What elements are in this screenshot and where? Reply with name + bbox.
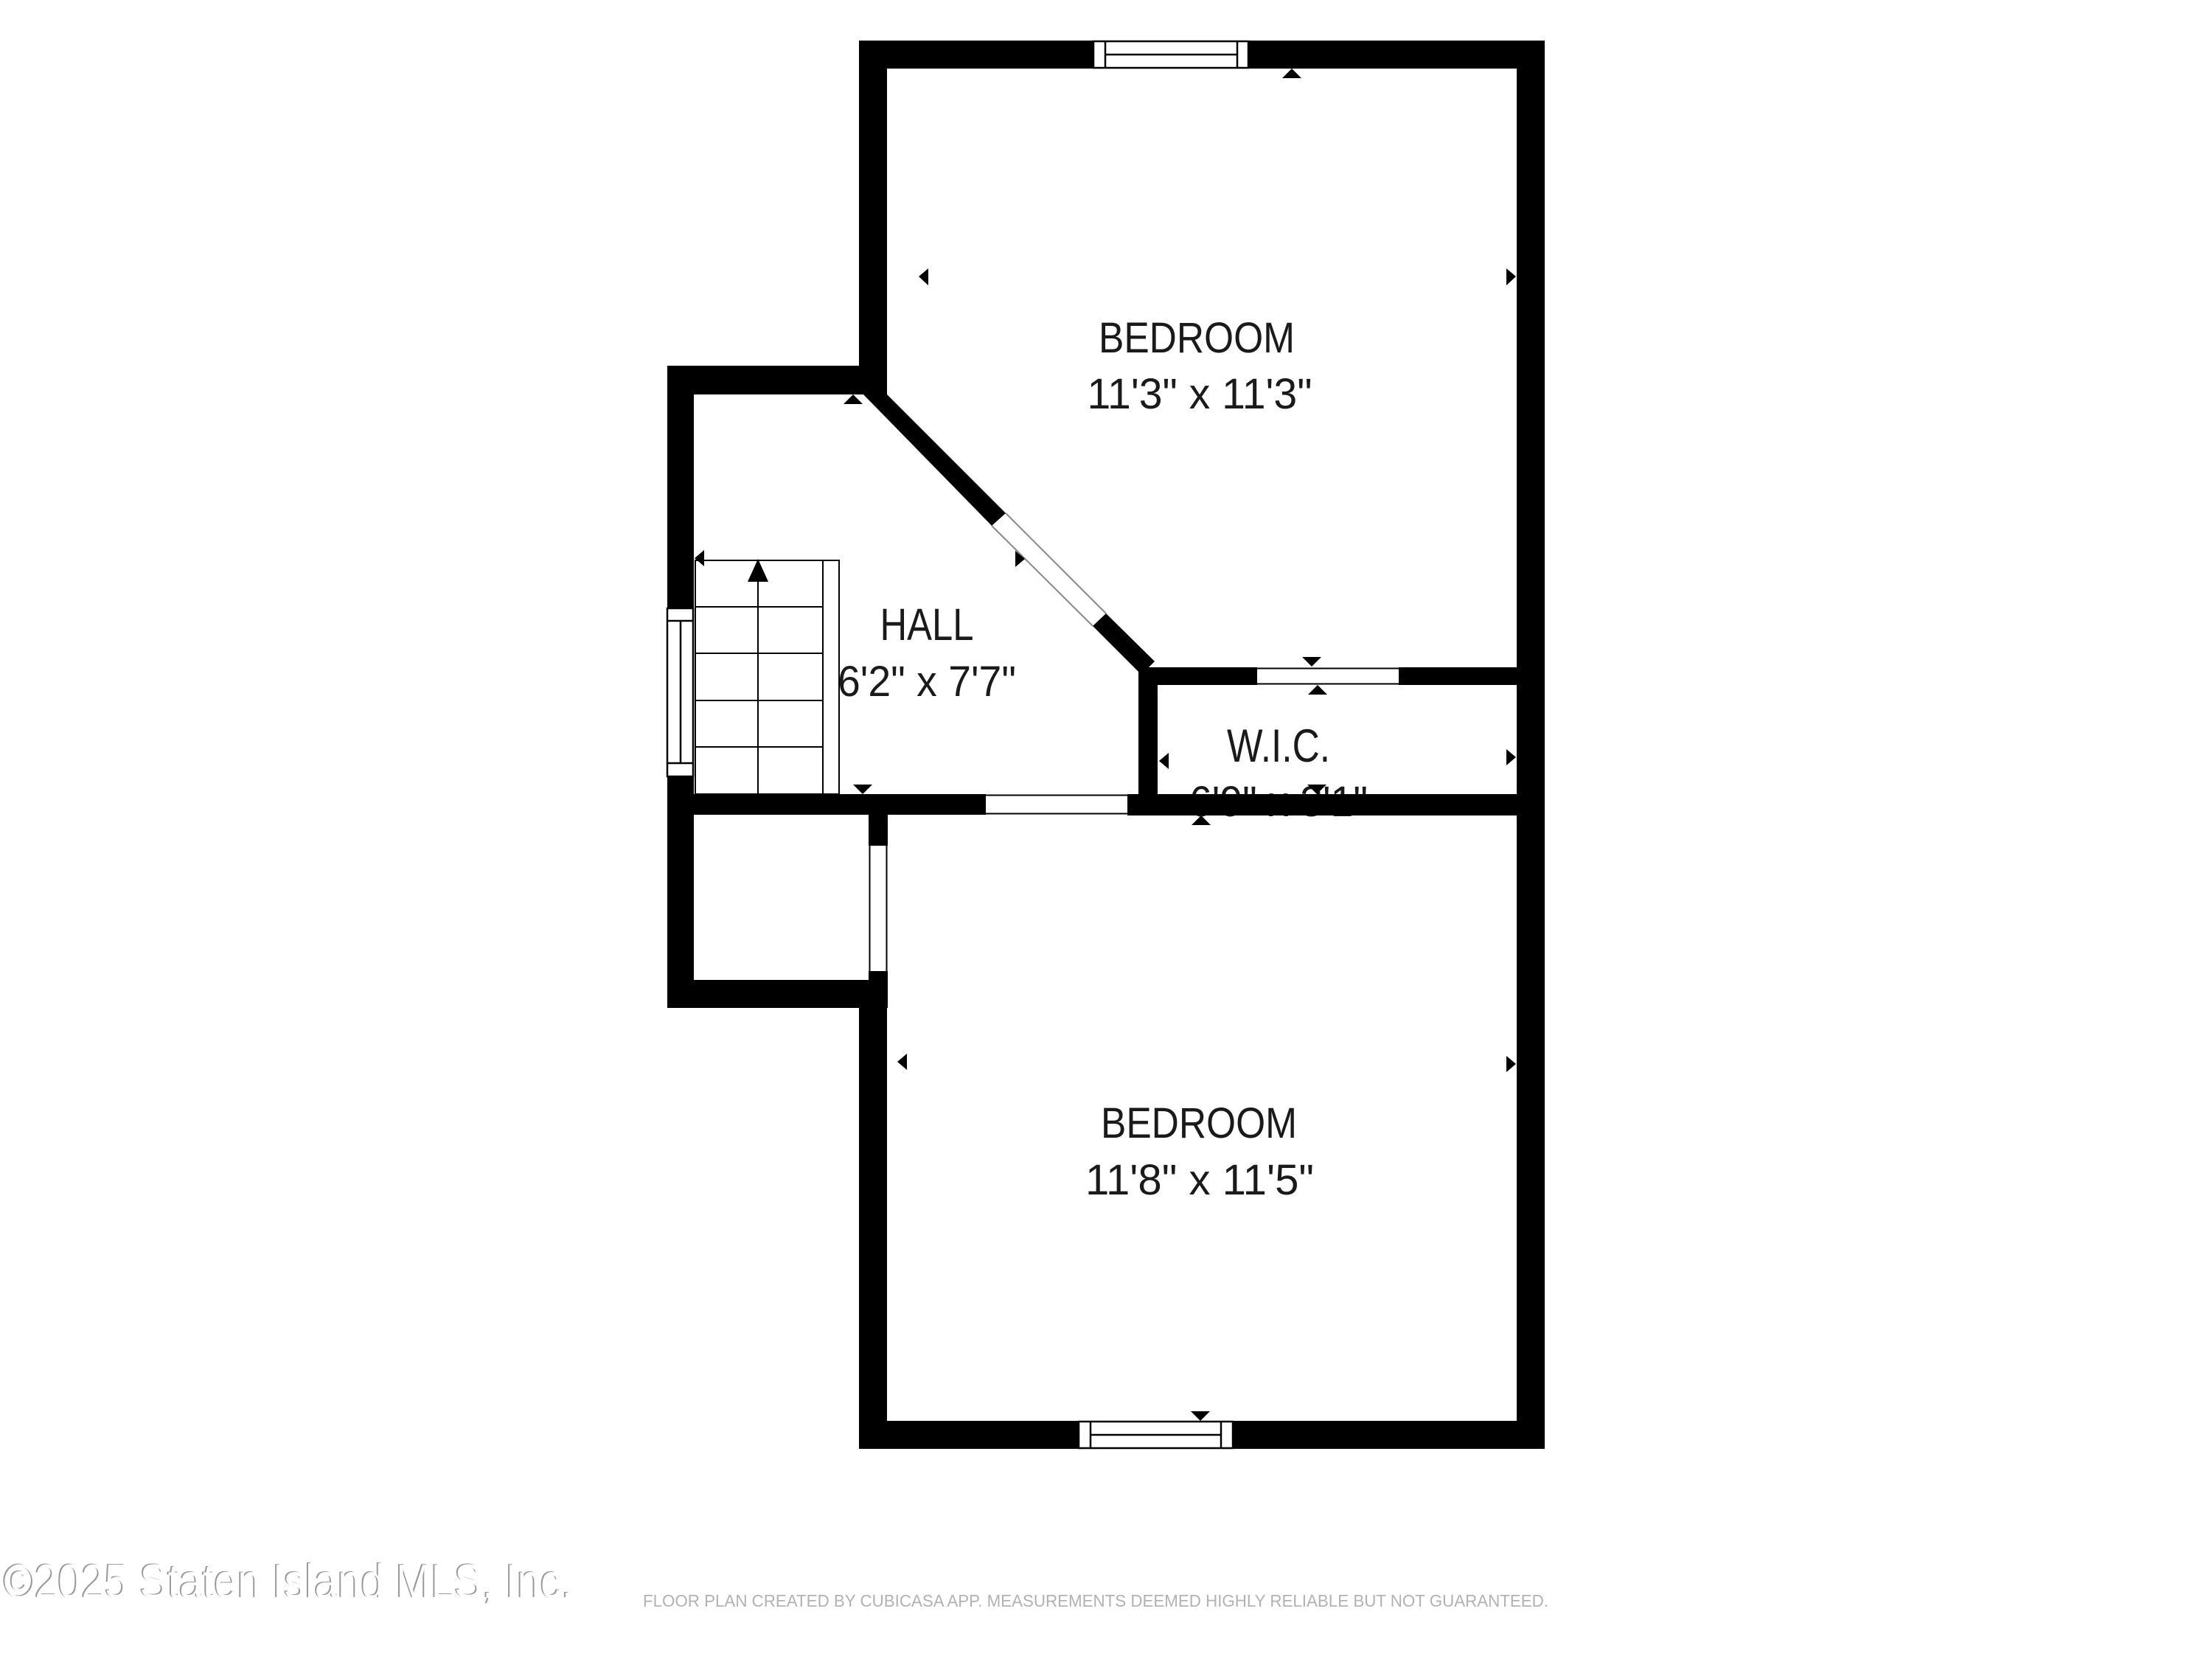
svg-text:FLOOR PLAN CREATED BY CUBICASA: FLOOR PLAN CREATED BY CUBICASA APP. MEAS… (643, 1591, 1548, 1610)
svg-text:6'2" x 7'7": 6'2" x 7'7" (838, 658, 1016, 706)
svg-text:©2025 Staten Island MLS, Inc.: ©2025 Staten Island MLS, Inc. (4, 1554, 574, 1608)
svg-text:W.I.C.: W.I.C. (1227, 720, 1330, 772)
svg-text:11'3" x 11'3": 11'3" x 11'3" (1088, 370, 1312, 418)
svg-text:BEDROOM: BEDROOM (1099, 314, 1295, 362)
svg-text:BEDROOM: BEDROOM (1101, 1099, 1297, 1147)
svg-text:11'8" x 11'5": 11'8" x 11'5" (1085, 1156, 1314, 1204)
svg-text:HALL: HALL (880, 599, 974, 650)
